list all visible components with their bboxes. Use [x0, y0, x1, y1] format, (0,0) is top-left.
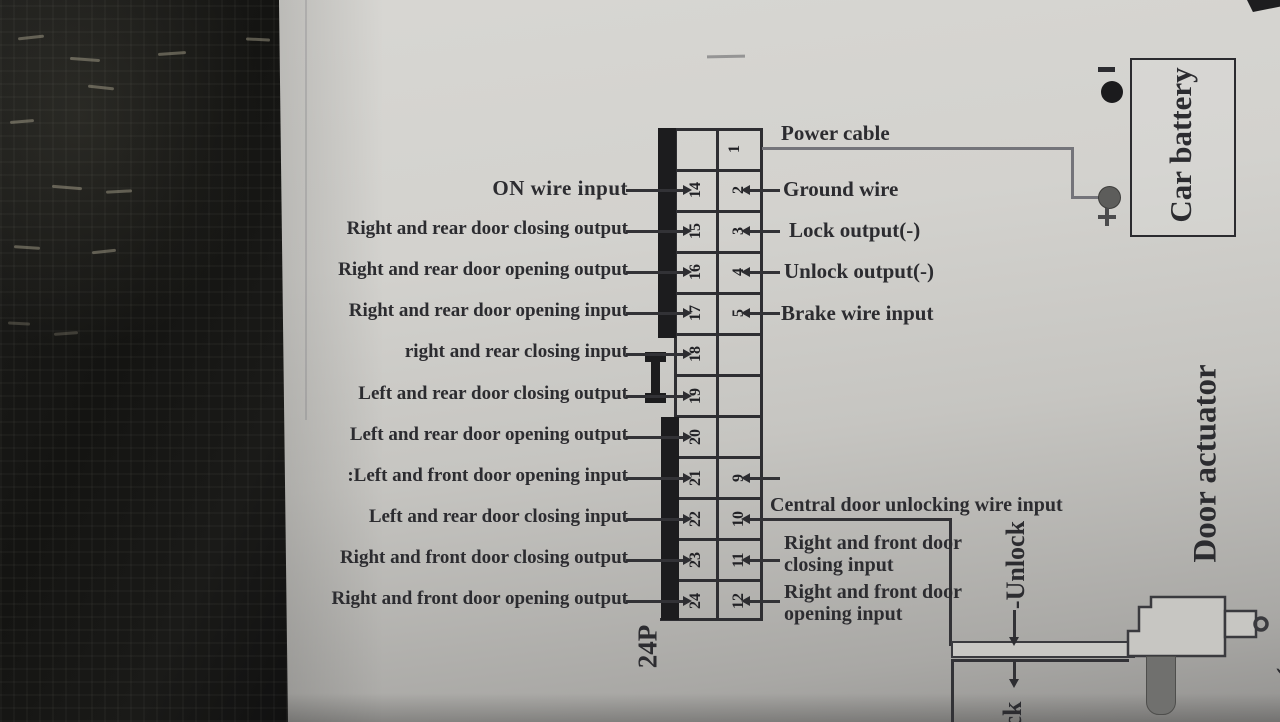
- actuator-body-svg: [0, 0, 1280, 722]
- partial-cropped-text: a (: [1271, 636, 1280, 722]
- door-actuator-label: Door actuator: [1188, 328, 1225, 600]
- actuator-body: [1128, 597, 1225, 656]
- wiring-diagram-photo: 14 15 16 17 18 19 20 21 22 23 24 1 2 3 4…: [0, 0, 1280, 722]
- lock-arrowhead: [1009, 679, 1019, 688]
- actuator-plunger: [1146, 656, 1176, 715]
- unlock-arrowhead: [1009, 637, 1019, 646]
- unlock-arrow-shaft: [1013, 610, 1016, 640]
- unlock-label: -Unlock: [1001, 500, 1031, 630]
- actuator-nozzle: [1225, 611, 1256, 637]
